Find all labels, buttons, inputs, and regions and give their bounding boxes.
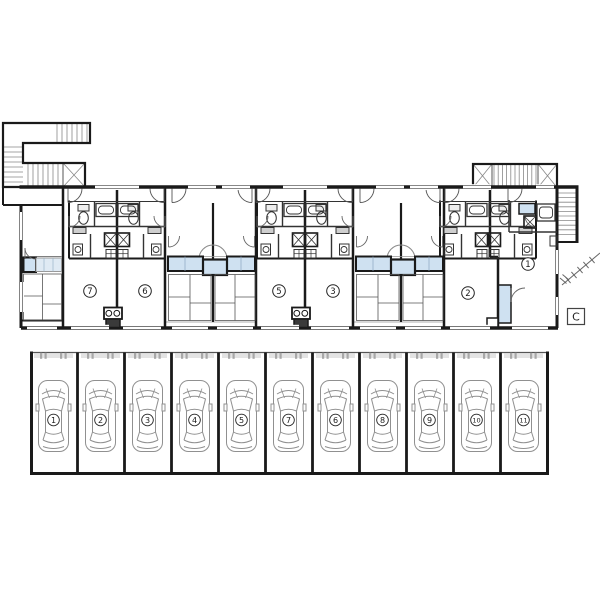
stall-label: 10 xyxy=(471,414,483,426)
stall-label: 3 xyxy=(142,414,154,426)
unit-3-label: 3 xyxy=(327,285,340,298)
svg-text:5: 5 xyxy=(276,287,281,297)
stall-label: 2 xyxy=(95,414,107,426)
svg-text:7: 7 xyxy=(286,416,291,425)
stall-label: 6 xyxy=(330,414,342,426)
stall-label: 11 xyxy=(518,414,530,426)
stall-label: 9 xyxy=(424,414,436,426)
svg-text:2: 2 xyxy=(98,416,103,425)
section-marker-c: C xyxy=(568,309,585,325)
unit-1-label: 1 xyxy=(522,258,535,271)
svg-text:6: 6 xyxy=(333,416,338,425)
svg-text:9: 9 xyxy=(427,416,432,425)
svg-text:4: 4 xyxy=(192,416,197,425)
svg-text:3: 3 xyxy=(330,287,335,297)
svg-text:3: 3 xyxy=(145,416,150,425)
stall-label: 1 xyxy=(48,414,60,426)
unit1-entry-blue xyxy=(499,285,512,323)
unit1-sink-blue xyxy=(519,204,535,215)
svg-text:7: 7 xyxy=(87,287,92,297)
unit-7-label: 7 xyxy=(84,285,97,298)
svg-text:C: C xyxy=(572,311,580,324)
floor-plan-drawing: 7 6 5 3 2 1 xyxy=(0,0,600,600)
stall-label: 7 xyxy=(283,414,295,426)
svg-text:6: 6 xyxy=(142,287,147,297)
unit-6-label: 6 xyxy=(139,285,152,298)
bottom-windows xyxy=(27,325,548,331)
svg-text:1: 1 xyxy=(525,260,530,270)
stall-label: 5 xyxy=(236,414,248,426)
stove-unit-pair-5-3 xyxy=(292,308,310,328)
kitchen-sink-blue xyxy=(24,258,37,273)
unit-2-label: 2 xyxy=(462,287,475,300)
stall-label: 8 xyxy=(377,414,389,426)
svg-text:5: 5 xyxy=(239,416,244,425)
svg-text:2: 2 xyxy=(465,289,470,299)
svg-text:8: 8 xyxy=(380,416,385,425)
unit-5-label: 5 xyxy=(273,285,286,298)
svg-text:11: 11 xyxy=(519,417,527,425)
stove-unit-pair-7-6 xyxy=(104,308,122,328)
svg-text:1: 1 xyxy=(51,416,56,425)
floor-plan-page: 7 6 5 3 2 1 xyxy=(0,0,600,600)
svg-text:10: 10 xyxy=(472,417,480,425)
stall-label: 4 xyxy=(189,414,201,426)
wheel-stop-ticks xyxy=(34,353,543,359)
